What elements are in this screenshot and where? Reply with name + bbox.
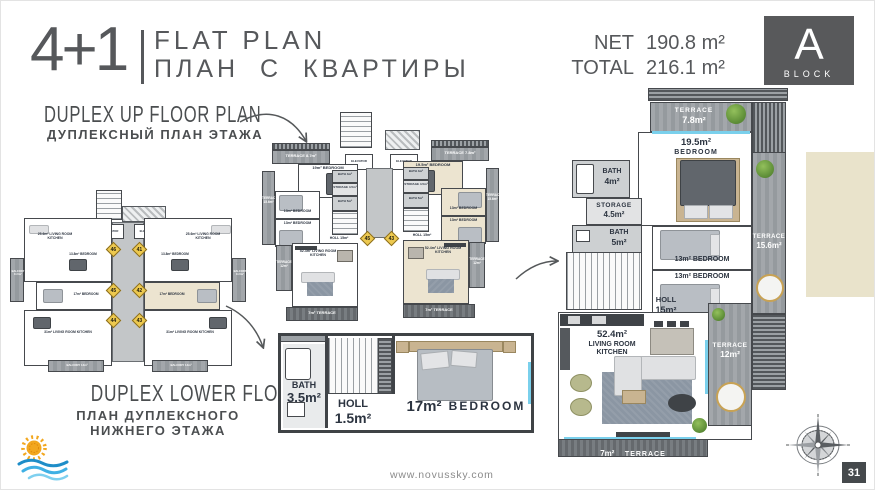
room-label: HOLL 15m²	[405, 233, 439, 237]
room-label: 31m² LIVING ROOM KITCHEN	[165, 331, 215, 335]
marker-number: 44	[111, 318, 117, 324]
room-label: 25.6m² LIVING ROOM KITCHEN	[33, 233, 77, 241]
room-label: 13m² BEDROOM	[656, 256, 748, 264]
upper-unit-right-highlighted: TERRACE 7.8m² 19.5m² BEDROOM TERRACE 15.…	[395, 140, 499, 319]
room-label: 13.8m² BEDROOM	[61, 253, 105, 257]
rug	[307, 282, 333, 296]
website-url: www.novussky.com	[390, 469, 494, 481]
terrace-label: TERRACE 15.6m²	[486, 194, 499, 201]
marker-number: 45	[365, 236, 371, 242]
compass-icon	[786, 414, 850, 476]
room-label: BATH	[596, 168, 628, 176]
room-area: 5m²	[600, 238, 638, 248]
dining-chair	[680, 321, 689, 327]
holl-label: HOLL	[329, 398, 377, 411]
terrace-7-label: 7m² TERRACE	[558, 443, 708, 461]
bed	[209, 317, 227, 329]
plant	[756, 160, 774, 178]
living-label-1: LIVING ROOM	[578, 341, 646, 349]
terrace-label: 7m² TERRACE	[403, 308, 475, 313]
area-summary: NET 190.8 m² TOTAL 216.1 m²	[570, 32, 760, 80]
duplex-up-label-en: DUPLEX UP FLOOR PLAN	[44, 101, 261, 128]
duplex-upper-plan: ELEVATOR ELEVATOR TERRACE 8.7m² 19m² BED…	[262, 100, 512, 324]
pillow	[710, 234, 720, 256]
stairs	[566, 252, 642, 310]
pillow	[420, 351, 450, 371]
page-title: FLAT PLAN	[154, 25, 326, 56]
rug	[428, 279, 454, 293]
dining-table	[650, 328, 694, 355]
bath-label: BATH	[281, 380, 327, 390]
window	[528, 362, 531, 404]
block-letter: A	[794, 23, 823, 67]
duplex-lower-label-ru1: ПЛАН ДУПЛЕКСНОГО	[46, 408, 270, 423]
bathtub	[576, 164, 594, 194]
overview-balcony-left: BALCONY 11.5m²	[10, 258, 24, 302]
overview-unit-top-left: 25.6m² LIVING ROOM KITCHEN 13.8m² BEDROO…	[24, 218, 112, 282]
plant	[726, 104, 746, 124]
room-label: 25.6m² LIVING ROOM KITCHEN	[181, 233, 225, 241]
holl-area: 1.5m²	[329, 410, 377, 426]
dining-table	[408, 247, 424, 259]
terrace-15-6	[486, 168, 499, 242]
room-label: BATH 5m²	[403, 197, 429, 200]
net-label: NET	[570, 32, 634, 55]
bathtub	[285, 348, 311, 380]
room-area: 4m²	[596, 177, 628, 187]
arrow-to-main-plan	[516, 261, 557, 279]
page-number-badge: 31	[842, 462, 866, 483]
bedroom-13-a	[441, 188, 486, 216]
room-label: 13.8m² BEDROOM	[153, 253, 197, 257]
duplex-up-label-ru: ДУПЛЕКСНЫЙ ПЛАН ЭТАЖА	[47, 127, 263, 142]
kitchen-sink	[592, 316, 606, 324]
terrace-table	[716, 382, 746, 412]
terrace-label: TERRACE 12m²	[469, 258, 485, 265]
awning-top	[648, 88, 788, 101]
holl-label: HOLL	[644, 296, 688, 305]
armchair	[570, 398, 592, 416]
block-badge: A BLOCK	[764, 16, 854, 85]
pouf	[668, 394, 696, 412]
room-label: STORAGE 4.5m²	[403, 183, 429, 186]
duplex-lower-label-ru2: НИЖНЕГО ЭТАЖА	[46, 423, 270, 438]
stairs	[328, 338, 378, 394]
beige-panel	[806, 152, 874, 297]
room-label: 13m² BEDROOM	[276, 209, 319, 213]
dining-chair	[667, 321, 676, 327]
terrace-label: 7m² TERRACE	[286, 311, 358, 316]
terrace-label: TERRACE 12m²	[276, 261, 292, 268]
bed	[69, 259, 87, 271]
balcony-label: BALCONY 11.5m²	[11, 271, 25, 277]
terrace-label: TERRACE	[625, 451, 666, 458]
bedroom-area: 17m²	[399, 398, 449, 415]
sink	[576, 230, 590, 242]
room-label: BATH 4m²	[332, 173, 358, 176]
unit-stairs	[332, 211, 358, 235]
awning	[272, 143, 330, 150]
bath-area: 3.5m²	[281, 391, 327, 406]
marker-number: 46	[111, 247, 117, 253]
wall	[392, 336, 395, 394]
room-label: 13m² BEDROOM	[276, 221, 319, 225]
overview-stairs	[96, 190, 122, 220]
room-label: 52.4m² LIVING ROOM KITCHEN	[298, 249, 338, 257]
room-label: BATH	[600, 229, 638, 237]
nightstand	[396, 341, 409, 353]
overview-balcony-bottom-right: BALCONY 14m²	[152, 360, 208, 372]
terrace-label: TERRACE 15.6m²	[262, 197, 275, 204]
awning-right-lower	[752, 314, 786, 390]
pillow	[709, 205, 733, 219]
plant	[692, 418, 707, 433]
header-divider	[141, 30, 144, 84]
bed	[680, 160, 736, 206]
total-row: TOTAL 216.1 m²	[570, 57, 760, 80]
counter-side	[560, 328, 570, 370]
main-plan: TERRACE 7.8m² 19.5m² BEDROOM BATH 4m² ST…	[556, 88, 790, 460]
overview-balcony-bottom-left: BALCONY 14m²	[48, 360, 104, 372]
overview-unit-mid-left: 17m² BEDROOM	[36, 282, 112, 310]
bedroom-label: BEDROOM	[447, 400, 527, 414]
overview-unit-bottom-right: 31m² LIVING ROOM KITCHEN	[144, 310, 232, 366]
duplex-lower-label: DUPLEX LOWER FLOOR PLAN ПЛАН ДУПЛЕКСНОГО…	[46, 380, 270, 438]
terrace-area: 15.6m²	[752, 241, 786, 250]
terrace-area: 7m²	[600, 449, 614, 458]
room-label: 13m² BEDROOM	[442, 206, 485, 210]
sun-waves-logo-icon	[14, 432, 76, 482]
duplex-lower-plan: BATH 3.5m² HOLL 1.5m² 17m² BEDROOM	[278, 333, 534, 433]
terrace-15-6	[262, 171, 275, 245]
bed	[197, 289, 217, 303]
room-label: 31m² LIVING ROOM KITCHEN	[43, 331, 93, 335]
room-label: BATH 5m²	[332, 200, 358, 203]
room-label: STORAGE 4.5m²	[332, 186, 358, 189]
unit-type: 4+1	[30, 14, 126, 85]
overview-unit-top-right: 25.6m² LIVING ROOM KITCHEN 13.8m² BEDROO…	[144, 218, 232, 282]
dining-table	[337, 250, 353, 262]
bed	[171, 259, 189, 271]
marker-number: 43	[137, 318, 143, 324]
stair-rail	[378, 338, 392, 394]
overview-unit-mid-right-highlighted: 17m² BEDROOM	[144, 282, 220, 310]
marker-number: 41	[137, 247, 143, 253]
room-label: 13m² BEDROOM	[656, 273, 748, 281]
terrace-table	[756, 274, 784, 302]
coffee-table	[622, 390, 646, 404]
stove	[568, 316, 580, 324]
brochure-page: 4+1 FLAT PLAN ПЛАН С КВАРТИРЫ NET 190.8 …	[0, 0, 875, 490]
room-label: 13m² BEDROOM	[442, 218, 485, 222]
room-label: HOLL 15m²	[322, 236, 356, 240]
pillow	[684, 205, 708, 219]
terrace-label: TERRACE	[654, 107, 734, 114]
terrace-label: TERRACE 8.7m²	[272, 154, 330, 159]
block-label: BLOCK	[784, 69, 835, 79]
balcony-label: BALCONY 14m²	[153, 364, 209, 367]
living-area: 52.4m²	[578, 330, 646, 341]
overview-balcony-right: BALCONY 11.5m²	[232, 258, 246, 302]
overview-unit-bottom-left: 31m² LIVING ROOM KITCHEN	[24, 310, 112, 366]
marker-number: 43	[389, 236, 395, 242]
overview-plan: ELEVATOR ELEVATOR 25.6m² LIVING ROOM KIT…	[8, 188, 248, 380]
bed	[43, 289, 63, 303]
plant	[712, 308, 725, 321]
net-value: 190.8 m²	[646, 32, 725, 55]
ledge	[281, 336, 325, 342]
net-row: NET 190.8 m²	[570, 32, 760, 55]
room-label: 52.4m² LIVING ROOM KITCHEN	[423, 246, 463, 254]
room-label: 17m² BEDROOM	[63, 293, 109, 297]
dining-chair	[654, 321, 663, 327]
page-number: 31	[848, 467, 860, 479]
total-label: TOTAL	[570, 57, 634, 80]
balcony-label: BALCONY 14m²	[49, 364, 105, 367]
unit-stairs	[403, 208, 429, 232]
page-title-ru: ПЛАН С КВАРТИРЫ	[154, 55, 470, 84]
total-value: 216.1 m²	[646, 57, 725, 80]
bedroom-13-a	[275, 191, 320, 219]
upper-unit-left: TERRACE 8.7m² 19m² BEDROOM TERRACE 15.6m…	[262, 143, 366, 322]
bed	[33, 317, 51, 329]
armchair	[570, 374, 592, 392]
window	[652, 131, 750, 134]
room-label: BATH 4m²	[403, 170, 429, 173]
room-label: BEDROOM	[652, 149, 740, 157]
terrace-area: 12m²	[708, 350, 752, 360]
terrace-label: TERRACE	[752, 234, 786, 241]
room-label: STORAGE	[588, 202, 640, 209]
awning	[431, 140, 489, 147]
nightstand	[503, 341, 516, 353]
awning-right	[752, 102, 786, 154]
balcony-label: BALCONY 11.5m²	[233, 271, 247, 277]
marker-number: 42	[137, 288, 143, 294]
room-area: 19.5m²	[652, 138, 740, 149]
room-label: 17m² BEDROOM	[149, 293, 195, 297]
core-corridor	[366, 168, 393, 238]
terrace-area: 7.8m²	[654, 115, 734, 125]
terrace-label: TERRACE 7.8m²	[431, 151, 489, 156]
room-area: 4.5m²	[588, 210, 640, 219]
pillow	[450, 350, 477, 368]
marker-number: 45	[111, 288, 117, 294]
